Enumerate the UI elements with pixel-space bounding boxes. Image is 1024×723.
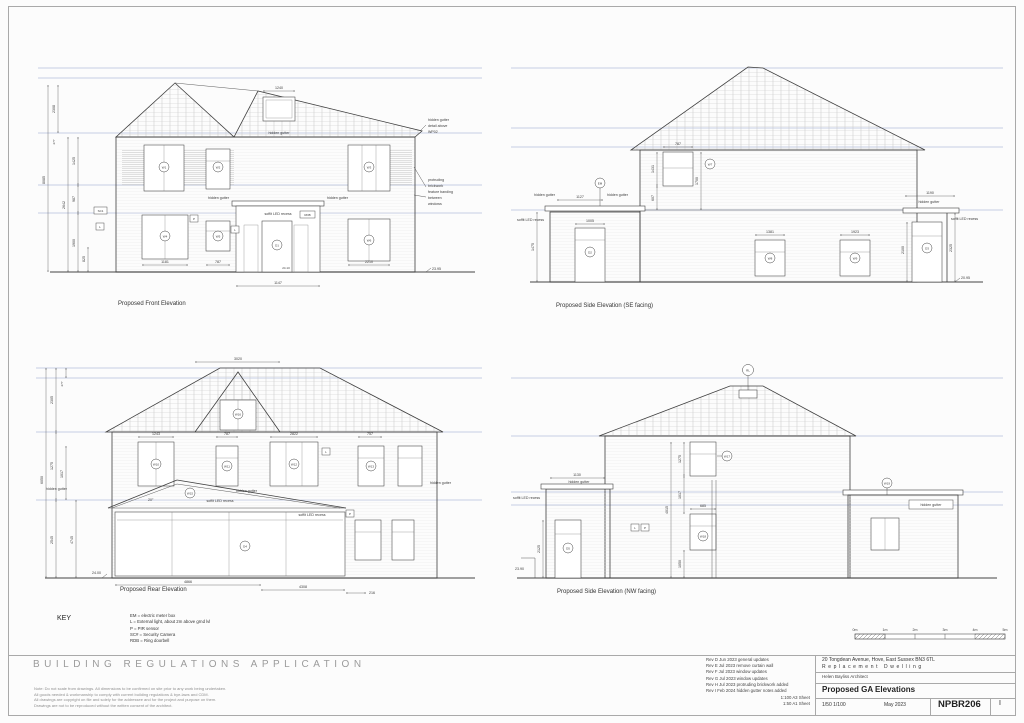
angle-label: 20° (148, 498, 154, 502)
se-elevation-drawing: 1127 hidden gutter hidden gutter soffit … (505, 50, 1010, 315)
dim-label: 685 (700, 504, 706, 508)
revision-entry: Rev I Feb 2024 hidden gutter notes added (706, 688, 788, 694)
soffit-label: soffit LED recess (264, 212, 291, 216)
level-label: 23.90 (515, 567, 524, 571)
dim-label: 2305 (50, 396, 54, 404)
porch-fascia (232, 201, 324, 206)
flat-roof-fascia (541, 484, 613, 489)
door-tag: D4 (243, 545, 247, 549)
window (398, 446, 422, 486)
window-tag: W6 (367, 239, 372, 243)
key-ref-box: P (644, 526, 646, 530)
drawing-sheet: 1240 hidden gutter hidden gutter hidden … (0, 0, 1024, 723)
door-tag: D5 (566, 547, 570, 551)
door-tag: D3 (925, 247, 929, 251)
key-ref-box: P (349, 512, 351, 516)
scale-bar-label: 5m (1003, 628, 1008, 632)
porch-fascia (903, 208, 959, 213)
nw-elevation-caption: Proposed Side Elevation (NW facing) (557, 589, 656, 595)
window-tag: W13 (368, 465, 375, 469)
drawing-number: NPBR206 (938, 699, 981, 710)
level-label: 24.10 (282, 266, 290, 270)
window-tag: W18 (700, 535, 707, 539)
window-tag: W5 (216, 235, 221, 239)
rooflight (739, 390, 757, 398)
sheet-scale-notes: 1:100 A3 Sheet 1:50 A1 Sheet (706, 695, 810, 707)
hidden-gutter-label: hidden gutter (921, 503, 943, 507)
window-tag: W2 (216, 166, 221, 170)
flat-roof-fascia (545, 206, 645, 211)
dim-label: 1275 (50, 462, 54, 470)
scale-bar-label: 1m (883, 628, 888, 632)
key-title: KEY (57, 615, 71, 622)
window-tag: W12 (291, 463, 298, 467)
dim-label: 2642 (62, 201, 66, 209)
dim-label: 1243 (152, 432, 160, 436)
window-tag: W16 (235, 413, 242, 417)
dim-label: 757 (367, 432, 373, 436)
scale-bar-label: 2m (913, 628, 918, 632)
window (392, 520, 414, 560)
dim-label: 1431 (651, 165, 655, 173)
dim-label: 1130 (573, 473, 581, 477)
dim-label: 1147 (274, 281, 282, 285)
dim-label: 1425 (72, 157, 76, 165)
note-line: Drawings are not to be reproduced withou… (34, 703, 226, 709)
dim-label: 2325 (949, 244, 953, 252)
dim-label: 8085 (42, 176, 46, 184)
dim-label: 4308 (299, 585, 307, 589)
note-line: Note: Do not scale from drawings. All di… (34, 686, 226, 692)
title-block-divider (815, 655, 816, 715)
dim-label: 787 (224, 432, 230, 436)
note-line: brickwork (428, 184, 443, 188)
window-tag: W17 (724, 455, 731, 459)
hidden-gutter-label: hidden gutter (327, 196, 349, 200)
hidden-gutter-label: hidden gutter (569, 480, 591, 484)
window-tag: W9 (853, 257, 858, 261)
door-tag: D2 (588, 251, 592, 255)
hidden-gutter-label: hidden gutter (269, 131, 291, 135)
key-list: EM = electric meter box L = External lig… (130, 613, 210, 644)
front-elevation-caption: Proposed Front Elevation (118, 301, 186, 307)
dim-label: 2545 (50, 536, 54, 544)
dim-label: 277 (60, 381, 64, 386)
svg-defs (0, 0, 1, 1)
note-line: feature banding (428, 190, 453, 194)
level-label: 20.95 (961, 276, 970, 280)
dim-label: 987 (72, 196, 76, 202)
dim-label: 825 (82, 256, 86, 262)
front-house (116, 83, 422, 272)
window-tag: W19 (884, 482, 891, 486)
rooflight (263, 97, 295, 121)
window-tag: W10 (153, 463, 160, 467)
dim-label: 3020 (234, 357, 242, 361)
title-block-rule (990, 698, 991, 715)
dim-label: 2125 (537, 545, 541, 553)
window-tag: W7 (708, 163, 713, 167)
dim-label: 4866 (184, 580, 192, 584)
dim-label: 1275 (678, 455, 682, 463)
soffit-label: soffit LED recess (513, 496, 540, 500)
dim-label: 277 (52, 139, 56, 144)
scale-bar-label: 0m (853, 628, 858, 632)
se-elevation-caption: Proposed Side Elevation (SE facing) (556, 303, 653, 309)
sliding-doors (115, 512, 345, 576)
soffit-label: soffit LED recess (206, 499, 233, 503)
note-line: windows (428, 202, 442, 206)
dim-label: 2210 (365, 260, 373, 264)
dim-label: 6050 (40, 476, 44, 484)
front-elevation-drawing: 1240 hidden gutter hidden gutter hidden … (30, 45, 490, 315)
dim-label: 1700 (695, 177, 699, 185)
level-label: 23.95 (432, 267, 441, 271)
window-tag: W4 (163, 235, 168, 239)
hidden-gutter-label: hidden gutter (236, 489, 258, 493)
dim-label: 1017 (60, 470, 64, 478)
window-tag: W1 (162, 166, 167, 170)
dim-label: 1240 (275, 86, 283, 90)
soffit-label: soffit LED recess (298, 513, 325, 517)
dim-label: 1475 (531, 243, 535, 251)
rooflight-tag: RL (746, 369, 750, 373)
title-block-rule (815, 698, 1015, 699)
dim-label: 1900 (72, 239, 76, 247)
revision-letter: I (999, 700, 1001, 707)
hidden-gutter-label: hidden gutter (46, 487, 68, 491)
key-ref-box: P (193, 217, 195, 221)
project-name: Replacement Dwelling (822, 664, 924, 670)
dim-label: 1127 (576, 195, 584, 199)
note-line: All drawings are copyright on file and s… (34, 697, 226, 703)
title-block-rule (815, 672, 1015, 673)
key-ref-box: SC1 (98, 209, 104, 213)
hidden-gutter-label: hidden gutter (919, 200, 941, 204)
hidden-gutter-label: hidden gutter (607, 193, 629, 197)
rear-house (106, 368, 443, 578)
revision-list: Rev D Jun 2023 general updates Rev E Jul… (706, 657, 788, 694)
dim-label: 1005 (586, 219, 594, 223)
drawing-scale: 1/50 1/100 (822, 702, 846, 708)
note-line: between (428, 196, 442, 200)
nw-elevation-drawing: 1130 hidden gutter soffit LED recess 212… (505, 350, 1010, 605)
dim-label: 4745 (70, 536, 74, 544)
drawing-date: May 2023 (884, 702, 906, 708)
drawing-title: Proposed GA Elevations (822, 685, 915, 694)
dim-label: 1050 (678, 560, 682, 568)
application-title: BUILDING REGULATIONS APPLICATION (33, 659, 366, 670)
note-line: protruding (428, 178, 444, 182)
window-tag: W15 (187, 492, 194, 496)
scale-bar: 0m 1m 2m 3m 4m 5m (850, 624, 1010, 644)
window (663, 152, 693, 186)
key-item: RDB = Ring doorbell (130, 638, 210, 644)
window (355, 520, 381, 560)
key-ref-box: RDB (304, 213, 310, 217)
architect-name: Helen Bayliss Architect (822, 674, 868, 679)
title-strip-divider (8, 655, 1015, 656)
dim-label: 787 (215, 260, 221, 264)
project-address: 20 Tongdean Avenue, Hove, East Sussex BN… (822, 657, 935, 663)
dim-label: 2100 (901, 246, 905, 254)
dim-label: 1923 (851, 230, 859, 234)
title-block-rule (815, 683, 1015, 684)
meter-tag: EM (598, 182, 603, 186)
hidden-gutter-label: hidden gutter (208, 196, 230, 200)
sheet-scale-note: 1:50 A1 Sheet (706, 701, 810, 707)
se-house (545, 67, 959, 282)
note-line: hidden gutter (428, 118, 450, 122)
general-notes: Note: Do not scale from drawings. All di… (34, 686, 226, 708)
window-tag: W3 (367, 166, 372, 170)
scale-bar-label: 3m (943, 628, 948, 632)
wing-fascia (843, 490, 963, 495)
note-line: WP02 (428, 130, 438, 134)
dim-label: 2822 (290, 432, 298, 436)
dim-label: 4015 (665, 506, 669, 514)
rear-elevation-caption: Proposed Rear Elevation (120, 587, 187, 593)
key-item: L = External light, about 2m above grnd … (130, 619, 210, 625)
window-tag: W11 (224, 465, 230, 469)
door-tag: D1 (275, 244, 279, 248)
dim-label: 216 (369, 591, 375, 595)
dim-label: 1381 (766, 230, 774, 234)
dim-label: 787 (675, 142, 681, 146)
title-block-rule (930, 698, 931, 715)
dim-label: 607 (651, 195, 655, 201)
hidden-gutter-label: hidden gutter (430, 481, 452, 485)
window (690, 442, 716, 476)
soffit-label: soffit LED recess (517, 218, 544, 222)
level-label: 24.00 (92, 571, 101, 575)
dim-label: 1181 (161, 260, 169, 264)
note-line: detail above (428, 124, 447, 128)
dim-label: 1017 (678, 491, 682, 499)
dim-label: 2308 (52, 105, 56, 113)
hidden-gutter-label: hidden gutter (534, 193, 556, 197)
window-tag: W8 (768, 257, 773, 261)
rear-elevation-drawing: 3020 1243 787 2822 757 20° soffit LED re… (30, 350, 490, 595)
dim-label: 1190 (926, 191, 934, 195)
scale-bar-label: 4m (973, 628, 978, 632)
